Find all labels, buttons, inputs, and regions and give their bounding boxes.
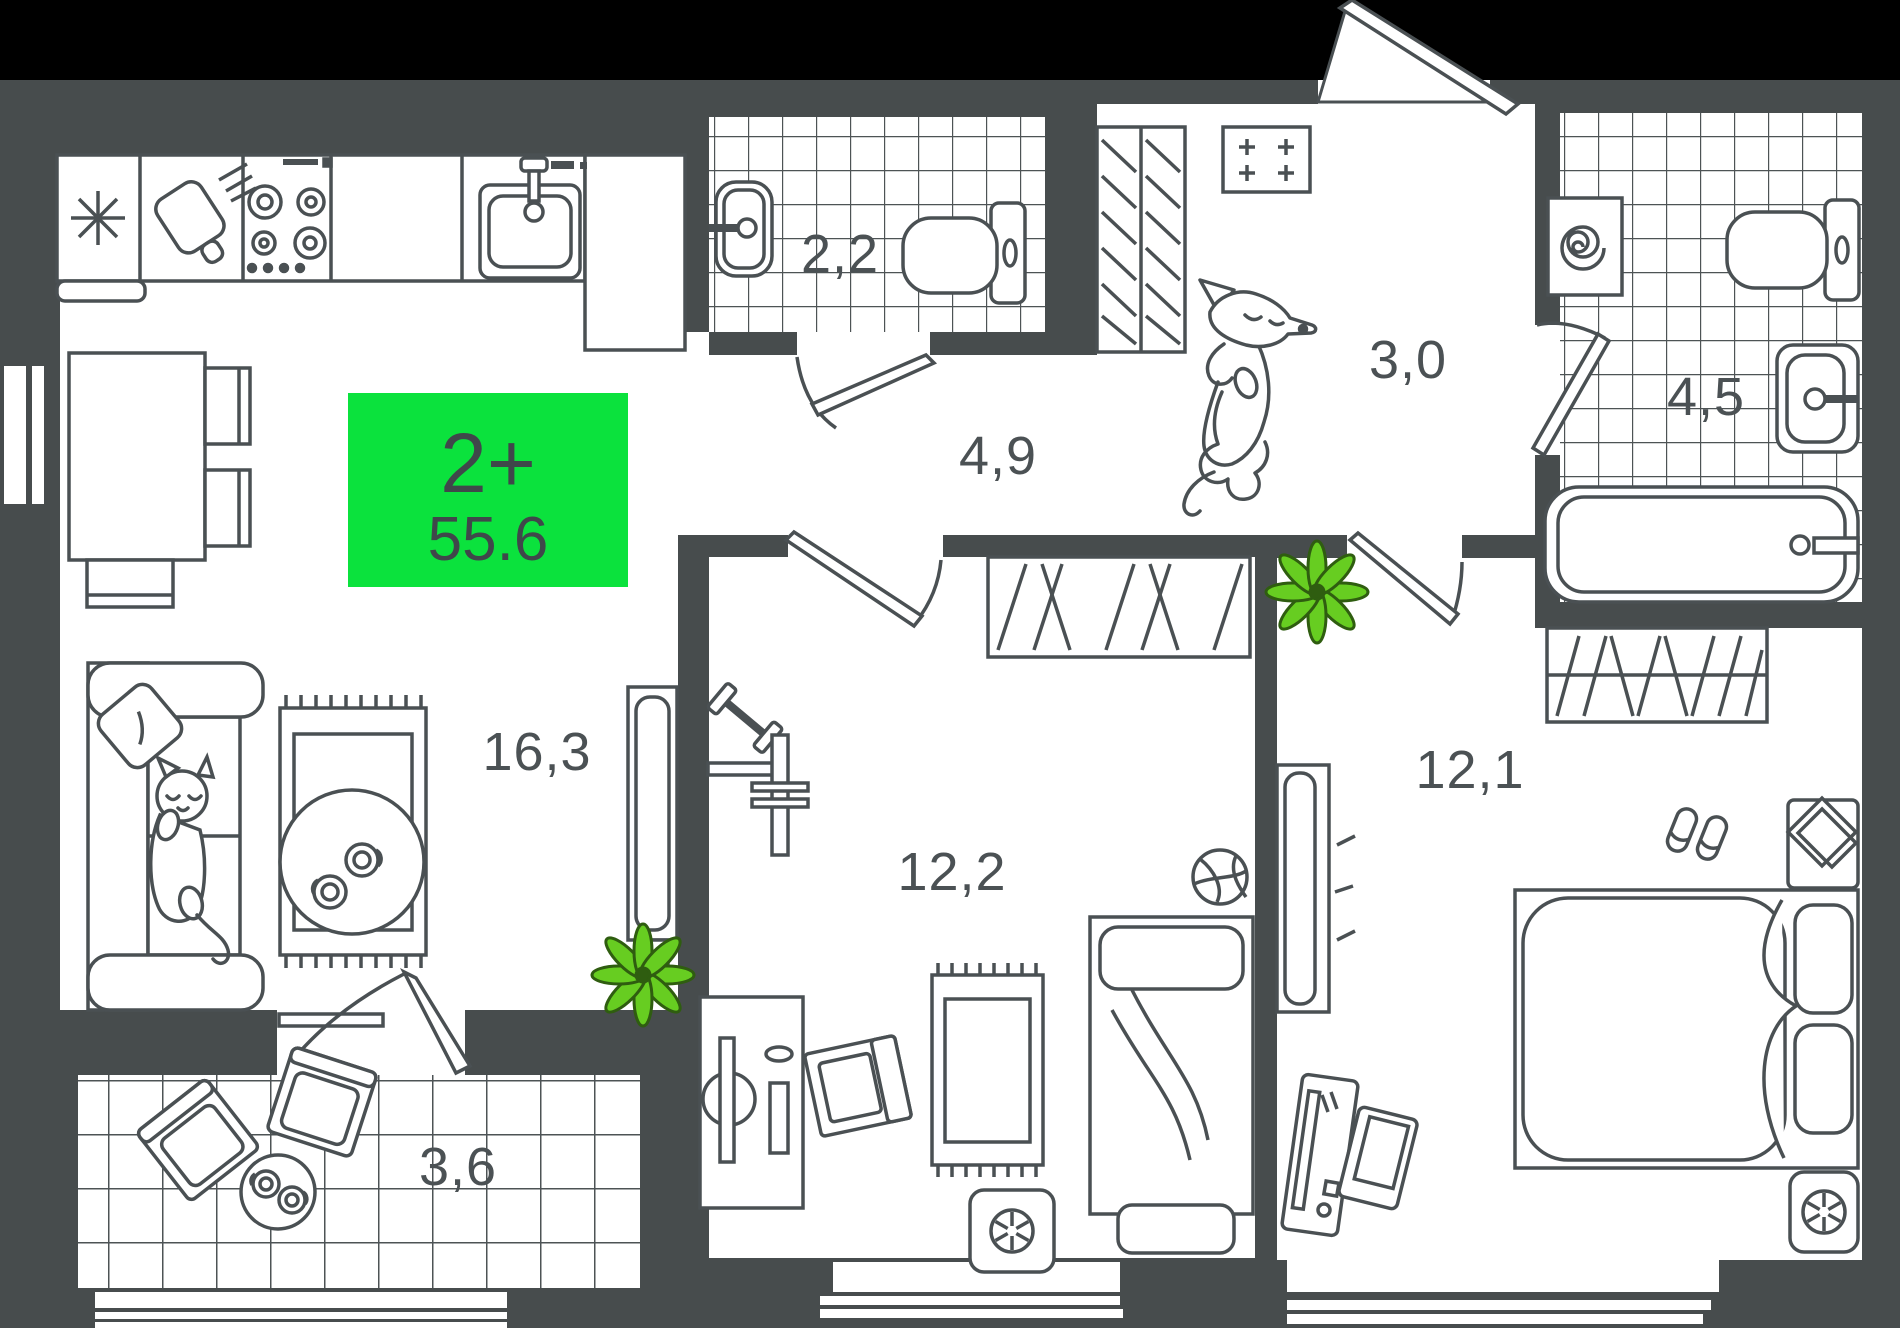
desk	[700, 997, 803, 1208]
air-conditioner	[970, 1190, 1054, 1272]
bath-sink-icon	[709, 182, 772, 276]
label-bedroom-right: 12,1	[1415, 740, 1524, 800]
nightstand	[1788, 798, 1858, 888]
entry-closet	[1097, 127, 1185, 352]
floor-bath-small-door-gap	[797, 332, 930, 357]
washing-machine-icon	[1548, 198, 1622, 295]
vent-shaft-icon	[1223, 127, 1310, 192]
label-kitchen-living: 16,3	[482, 722, 591, 782]
bedroom-right-window-strip	[1287, 1300, 1711, 1310]
label-hallway: 4,9	[959, 426, 1037, 486]
single-bed	[1090, 917, 1253, 1253]
bedroom-middle-window-strip	[820, 1309, 1123, 1318]
balcony-window-strip	[95, 1322, 507, 1328]
wardrobe-hatched	[988, 557, 1250, 657]
bed-footboard	[1118, 1205, 1234, 1253]
bed-pillow	[1795, 905, 1852, 1013]
chair	[87, 560, 173, 607]
label-entry-hall: 3,0	[1369, 330, 1447, 390]
badge-rooms-label: 2+	[440, 416, 536, 510]
label-bedroom-middle: 12,2	[897, 842, 1006, 902]
plant-icon	[1266, 541, 1368, 643]
fridge-icon	[71, 191, 125, 245]
apartment-type-badge[interactable]: 2+ 55.6	[348, 393, 628, 587]
wardrobe-hatched	[1547, 628, 1767, 722]
balcony-window-strip	[95, 1312, 507, 1319]
label-bathroom-small: 2,2	[801, 224, 879, 284]
sofa	[88, 663, 263, 1010]
toilet-icon	[1727, 200, 1859, 300]
floor-plan-stage: 16,3 2,2 4,9 3,0 4,5 12,2 12,1 3,6 2+ 55…	[0, 0, 1900, 1328]
plant-icon	[592, 924, 694, 1026]
chair	[205, 470, 250, 546]
living-rug	[280, 695, 426, 968]
balcony-window-strip	[95, 1292, 507, 1308]
kitchen-counter-cap	[57, 281, 145, 301]
bed-pillow	[1795, 1025, 1852, 1133]
floor-passage	[678, 332, 709, 535]
label-balcony: 3,6	[419, 1137, 497, 1197]
sofa-armrest	[88, 955, 263, 1010]
top-band	[0, 0, 1900, 80]
tilted-chair	[804, 1035, 911, 1136]
coffee-table	[280, 790, 424, 934]
kitchen-counter-deep	[585, 155, 685, 350]
double-bed	[1515, 890, 1858, 1168]
air-conditioner	[1790, 1172, 1858, 1252]
label-bathroom-large: 4,5	[1667, 367, 1745, 427]
basketball-icon	[1193, 850, 1247, 904]
badge-area-value: 55.6	[428, 505, 549, 574]
bedroom-right-window-strip	[1287, 1258, 1719, 1292]
bedroom-right-window-strip	[1287, 1314, 1703, 1324]
bath-sink-icon	[1777, 345, 1858, 452]
bathtub-icon	[1545, 487, 1858, 602]
bedroom-rug	[932, 963, 1043, 1177]
left-window-strip	[32, 366, 44, 504]
left-window-strip	[4, 366, 26, 504]
toilet-icon	[903, 203, 1025, 303]
tv-panel	[628, 687, 677, 966]
chair	[205, 368, 250, 444]
bedroom-middle-window-strip	[820, 1296, 1120, 1305]
floor-plan-svg: 16,3 2,2 4,9 3,0 4,5 12,2 12,1 3,6 2+ 55…	[0, 0, 1900, 1328]
bed-duvet	[1523, 898, 1785, 1160]
